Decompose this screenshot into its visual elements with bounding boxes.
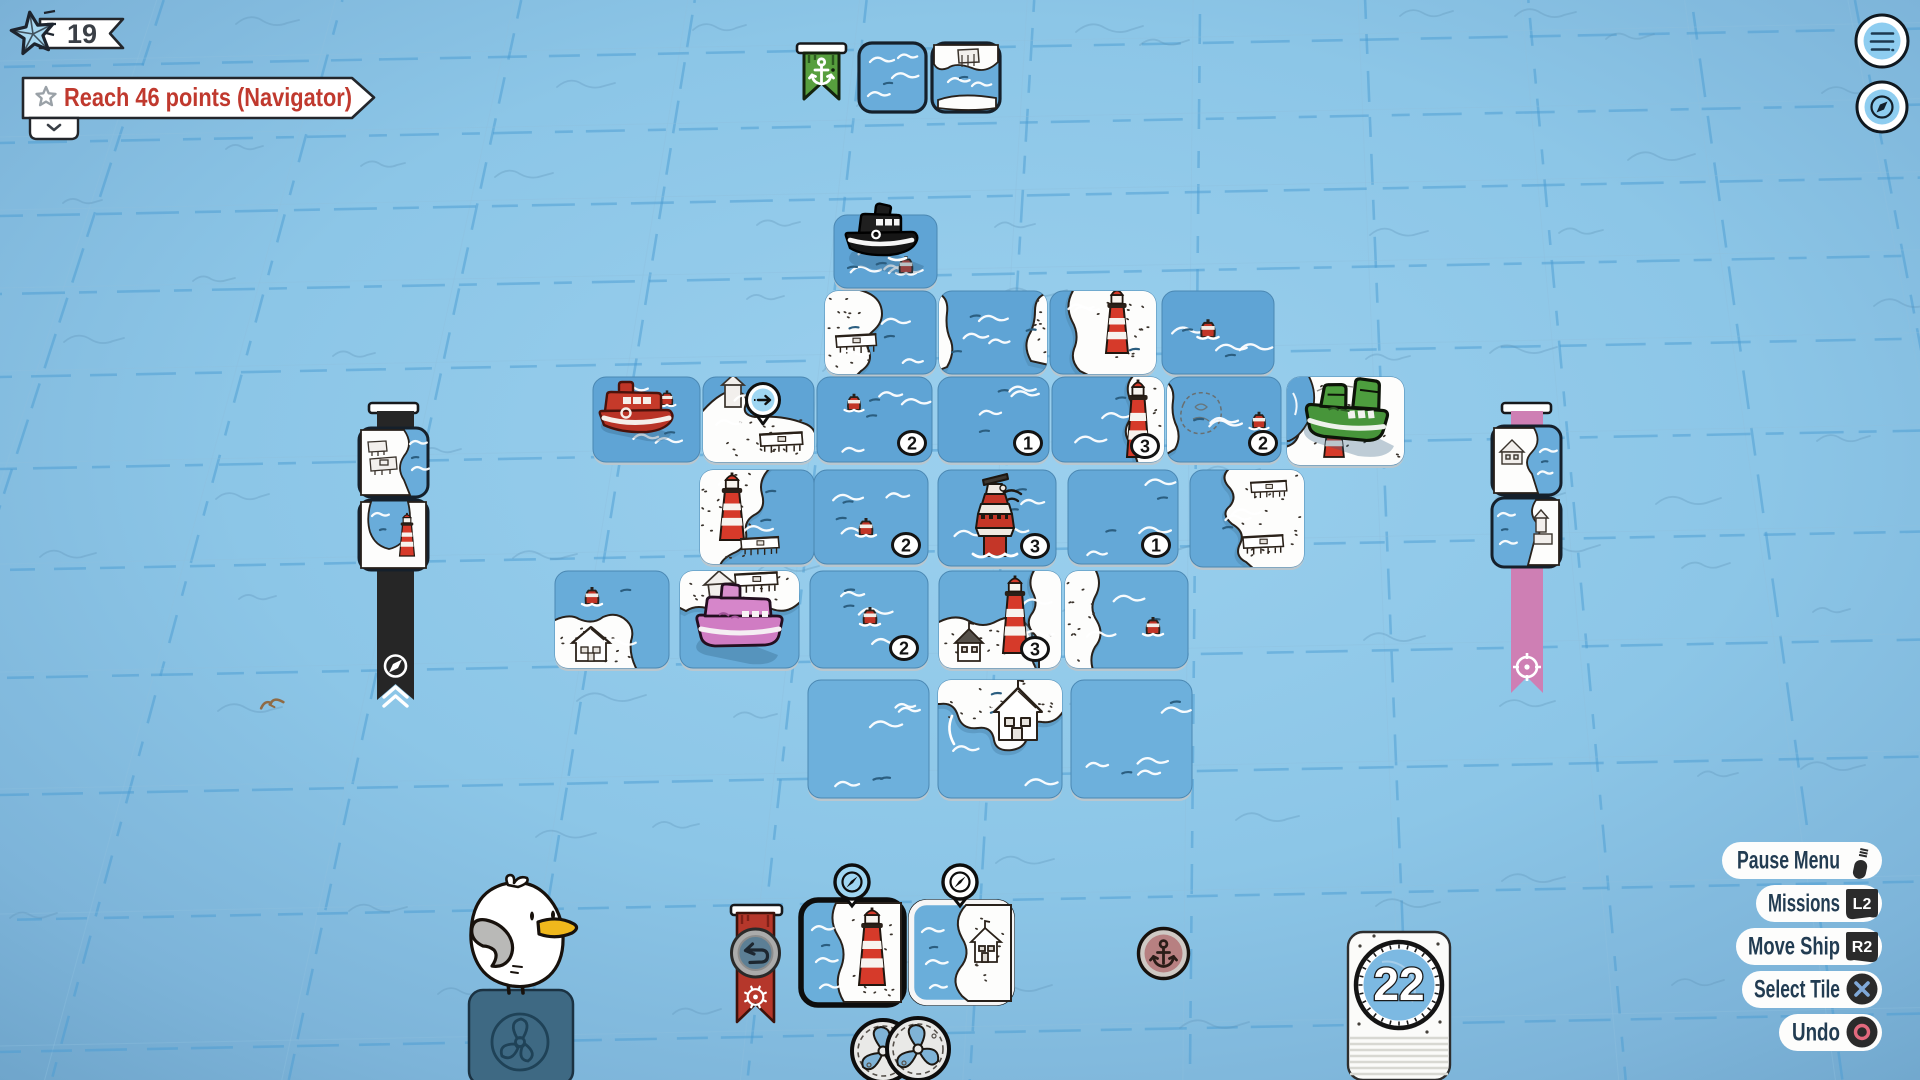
svg-text:22: 22 bbox=[1373, 958, 1424, 1010]
svg-text:L2: L2 bbox=[1853, 896, 1872, 913]
svg-text:R2: R2 bbox=[1852, 939, 1873, 956]
svg-text:Missions: Missions bbox=[1768, 890, 1840, 918]
svg-text:3: 3 bbox=[1030, 537, 1040, 557]
svg-text:1: 1 bbox=[1023, 434, 1033, 454]
svg-text:2: 2 bbox=[1258, 434, 1268, 454]
svg-text:Move Ship: Move Ship bbox=[1748, 933, 1840, 961]
svg-text:Pause Menu: Pause Menu bbox=[1737, 847, 1840, 875]
svg-text:Select Tile: Select Tile bbox=[1754, 976, 1840, 1004]
svg-text:Reach 46 points (Navigator): Reach 46 points (Navigator) bbox=[64, 82, 352, 112]
svg-text:Undo: Undo bbox=[1792, 1019, 1840, 1047]
svg-text:1: 1 bbox=[1151, 536, 1161, 556]
svg-text:3: 3 bbox=[1140, 437, 1150, 457]
svg-text:3: 3 bbox=[1030, 640, 1040, 660]
svg-text:19: 19 bbox=[67, 19, 97, 49]
svg-text:2: 2 bbox=[899, 639, 909, 659]
svg-text:2: 2 bbox=[907, 434, 917, 454]
svg-text:2: 2 bbox=[901, 536, 911, 556]
